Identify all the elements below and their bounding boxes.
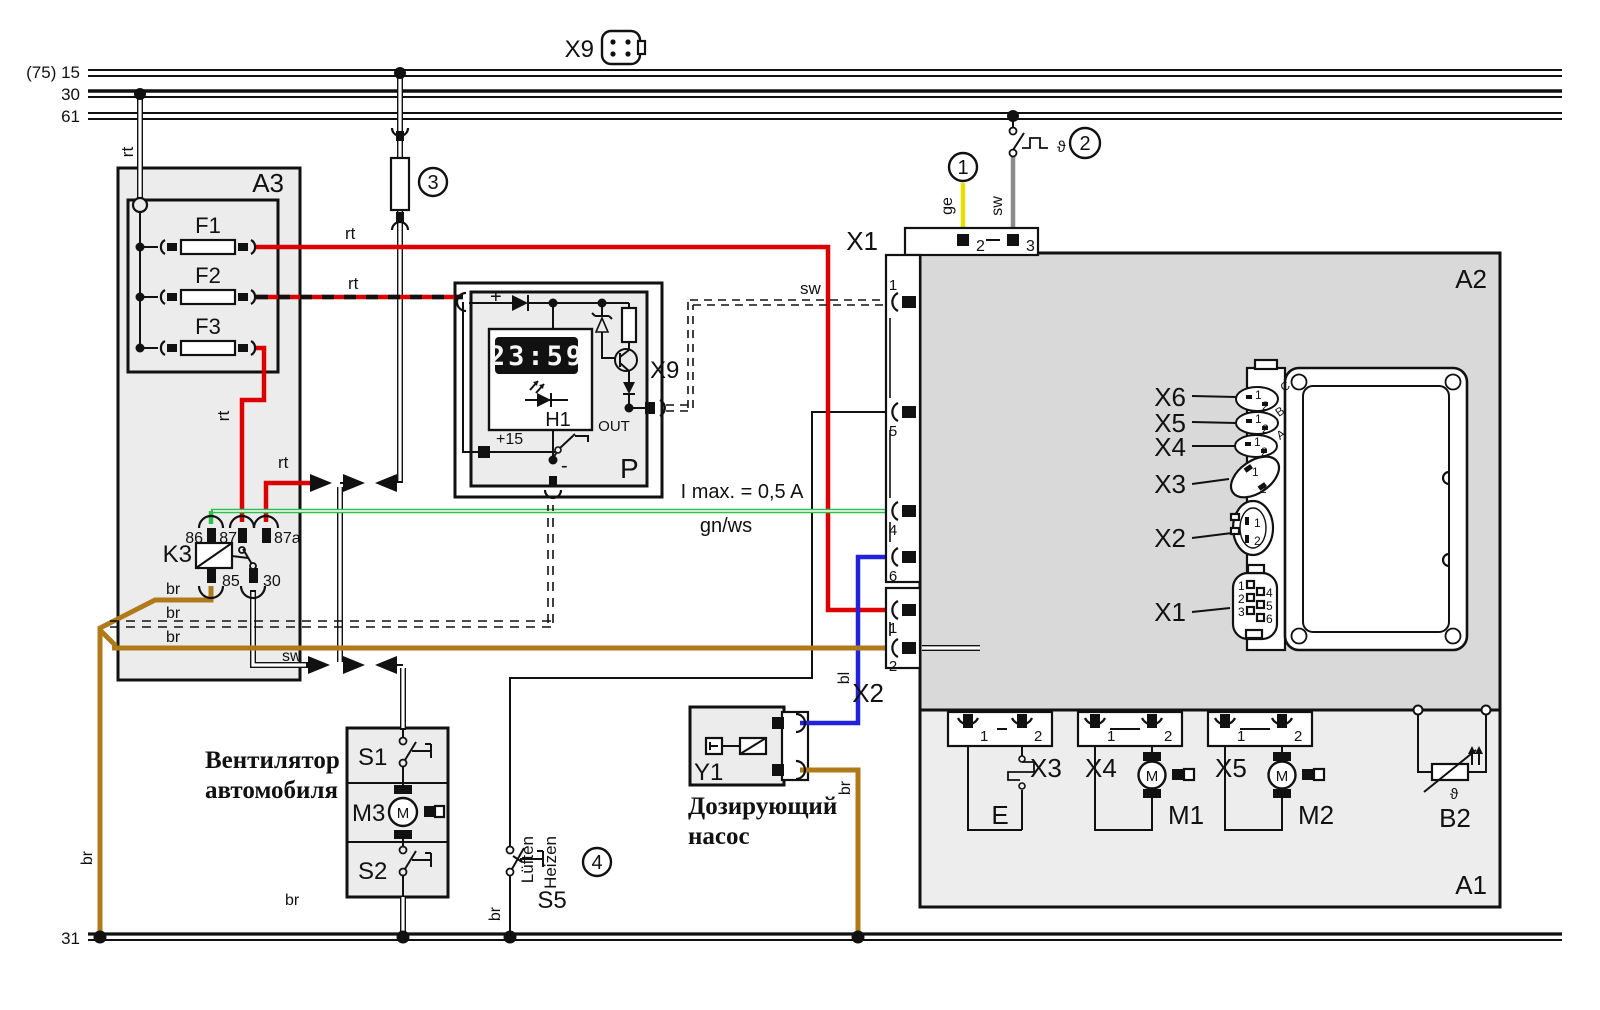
k3-pin86-label: 86 [185,530,203,547]
x2-connector-label: X2 [852,678,884,708]
imax-label: I max. = 0,5 A [681,481,805,503]
x2-pin2-label: 2 [889,658,897,675]
bus-30-label: 30 [61,85,80,104]
bus-61-label: 61 [61,107,80,126]
clock-display-value: 23:59 [489,341,585,372]
fan-title-line1: Вентилятор [205,747,340,774]
wire-label-br-7: br [837,780,854,795]
x1-pin1-label: 1 [889,277,897,294]
a3-label: A3 [252,168,284,198]
e-label: E [991,800,1008,830]
pump-title-line2: насос [688,823,750,850]
wire-label-rt-3: rt [348,274,359,293]
face-x1-pin2: 2 [1238,592,1245,606]
face-x5-pin2: 2 [1262,422,1269,436]
m3-motor-letter: M [397,805,410,822]
face-x1-pin6: 6 [1266,612,1273,626]
x1-pin6-label: 6 [889,568,897,585]
f3-label: F3 [195,314,221,339]
face-x6-pin1: 1 [1255,388,1262,402]
controller-housing-view [1247,360,1467,650]
clock-x9-label: X9 [650,357,679,384]
s5-label: S5 [537,887,566,914]
face-x3-pin1: 1 [1252,465,1259,479]
wire-label-sw-1: sw [282,648,302,665]
callout-3-label: 3 [427,172,438,194]
bus-31-label: 31 [61,929,80,948]
f1-label: F1 [195,213,221,238]
x1-pin5-label: 5 [889,423,897,440]
temperature-switch-symbol [1010,128,1049,157]
s1-label: S1 [358,744,387,771]
strip-x4-label: X4 [1085,753,1117,783]
b2-label: B2 [1439,803,1471,833]
clock-plus15-label: +15 [496,431,523,448]
wire-label-sw-2: sw [800,279,822,298]
face-x4-pin2: 2 [1261,445,1268,459]
k3-pin87-label: 87 [219,530,237,547]
k3-pin85-label: 85 [222,573,240,590]
strip-x4-pin1: 1 [1107,728,1115,745]
callout-4-label: 4 [591,852,602,874]
bus-terminal-61 [88,113,1562,119]
m1-motor-letter: M [1146,768,1159,785]
clock-h1-label: H1 [545,409,571,431]
clock-plus-label: + [490,286,502,308]
wire-label-bl: bl [836,672,853,684]
face-x2-pin1: 1 [1254,516,1261,530]
callout-1: 1 [949,153,977,181]
strip-x4-pin2: 2 [1164,728,1172,745]
m2-motor-letter: M [1276,768,1289,785]
callout-3: 3 [419,168,447,196]
inline-connector-arrows-bottom-row [308,656,403,674]
y1-label: Y1 [694,759,723,786]
pump-title-line1: Дозирующий [688,793,837,820]
wire-label-sw-3: sw [989,196,1006,216]
inline-connector-arrows-top-row [310,474,397,492]
face-x5-pin1: 1 [1255,412,1262,426]
strip-x3-pin1: 1 [980,728,988,745]
wire-label-rt-1: rt [118,147,137,158]
wire-sw-dashed-clock-out-to-x1pin1 [666,300,896,411]
x1-pin3-label: 3 [1026,238,1035,255]
x1-pin2-label: 2 [976,238,985,255]
strip-x3-pin2: 2 [1034,728,1042,745]
face-x4-pin1: 1 [1254,435,1261,449]
bus-terminal-15 [88,70,1562,76]
wire-label-rt-5: rt [278,453,289,472]
fan-title-line2: автомобиля [205,777,338,804]
theta-symbol-b2: ϑ [1450,786,1459,803]
strip-x5-label: X5 [1215,753,1247,783]
face-x1-pin1: 1 [1238,579,1245,593]
wire-label-br-2: br [166,605,181,622]
bus-15-label: (75) 15 [26,63,80,82]
x9-connector-icon [602,31,645,64]
face-x1-label: X1 [1154,597,1186,627]
strip-x3-label: X3 [1030,753,1062,783]
face-x2-label: X2 [1154,523,1186,553]
face-x1-pin3: 3 [1238,605,1245,619]
m2-label: M2 [1298,800,1334,830]
face-x1-pin5: 5 [1266,599,1273,613]
callout-2-label: 2 [1079,133,1090,155]
k3-pin30-label: 30 [263,573,281,590]
s5-lueften-label: Lüften [518,836,537,883]
callout-2: 2 [1070,128,1100,158]
strip-x5-pin2: 2 [1294,728,1302,745]
wire-label-br-3: br [166,629,181,646]
face-x6-pin2: 2 [1262,399,1269,413]
m3-label: M3 [352,800,385,827]
wire-label-rt-2: rt [345,224,356,243]
wiring-diagram-canvas: 1 2 3 4 (75) 15 30 61 31 X9 rt A3 F1 F2 … [0,0,1600,1010]
k3-pin87a-label: 87a [274,530,301,547]
a1-label: A1 [1455,870,1487,900]
x9-top-label: X9 [565,36,594,63]
callout-1-label: 1 [957,157,968,179]
clock-minus-label: - [561,455,568,477]
clock-p-label: P [620,453,639,484]
strip-x5-pin1: 1 [1237,728,1245,745]
m1-label: M1 [1168,800,1204,830]
connector-x1-top-box [905,228,1038,255]
wire-label-br-1: br [166,581,181,598]
x2-pin1-label: 1 [889,620,897,637]
wire-label-br-6: br [487,906,504,921]
f2-label: F2 [195,263,221,288]
clock-out-label: OUT [598,418,630,435]
s5-heizen-label: Heizen [541,836,560,889]
wire-label-br-4: br [79,850,96,865]
face-x1-pin4: 4 [1266,586,1273,600]
s2-label: S2 [358,858,387,885]
wire-label-ge: ge [939,197,956,215]
face-x4-label: X4 [1154,432,1186,462]
face-x2-pin2: 2 [1254,534,1261,548]
x1-pin4-label: 4 [889,522,897,539]
wire-label-br-5: br [285,892,300,909]
callout-4: 4 [583,848,611,876]
face-x3-label: X3 [1154,469,1186,499]
gnws-label: gn/ws [700,515,752,537]
a2-label: A2 [1455,264,1487,294]
wire-label-rt-4: rt [214,411,233,422]
bus-terminal-30 [88,91,1562,97]
theta-symbol-top: ϑ [1057,139,1066,156]
face-x3-pin2: 2 [1260,482,1267,496]
x1-connector-label: X1 [846,226,878,256]
bus-terminal-31 [88,934,1562,940]
